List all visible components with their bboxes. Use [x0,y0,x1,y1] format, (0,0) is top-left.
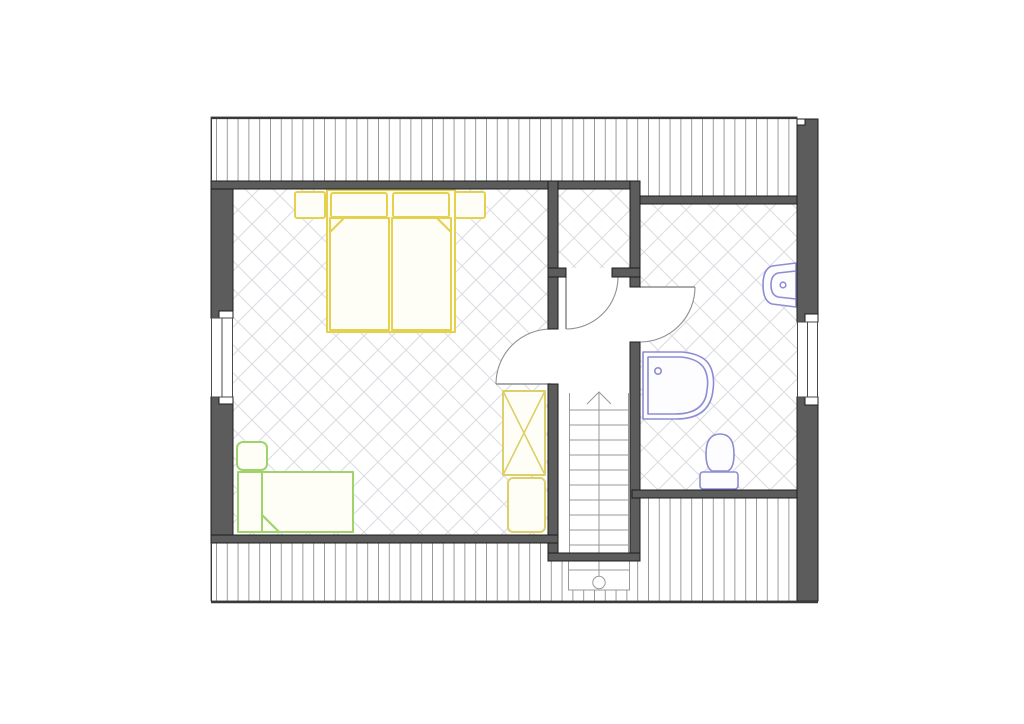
toilet-tank [700,472,738,489]
pillow-right [393,193,449,217]
single-bed-blanket [262,472,353,532]
nightstand-left [295,192,325,218]
mattress-left [330,218,389,330]
washbasin-tap [780,282,786,288]
wall-stairwell-bottom [548,553,640,561]
stair-start-post [593,576,605,588]
floor-plan-svg [0,0,1024,724]
nightstand-right [455,192,485,218]
wall-top-bathroom [632,196,797,204]
single-bed-pillow [237,442,267,470]
washbasin [763,263,796,307]
closet-floor [558,189,630,268]
wall-left-lower [211,397,233,535]
wall-notch [805,314,818,322]
wall-right-lower [797,397,818,601]
wall-closet-bottom-right [612,268,640,277]
wardrobe [503,391,545,475]
wall-bathroom-bottom [632,490,797,498]
wall-closet-bottom-left [548,268,566,277]
pillow-left [331,193,387,217]
window-left [212,318,233,397]
wall-notch [805,397,818,405]
wall-notch [219,397,233,404]
wall-notch [219,311,233,318]
mattress-right [392,218,451,330]
wall-bath-left-lower [630,342,640,561]
wall-bedroom-right-upper [548,181,558,329]
floor-plan-page [0,0,1024,724]
double-bed [327,190,455,332]
wall-bedroom-bottom [211,535,558,543]
wall-bedroom-right-lower [548,384,558,561]
toilet-bowl [706,434,734,471]
window-right [798,322,818,397]
corner-shower [643,352,714,419]
cabinet [508,478,545,532]
wall-left-upper [211,181,233,318]
wall-notch [797,119,805,125]
shower-drain [655,368,661,374]
wall-right-upper [797,119,818,322]
wall-top-bedroom [211,181,640,189]
